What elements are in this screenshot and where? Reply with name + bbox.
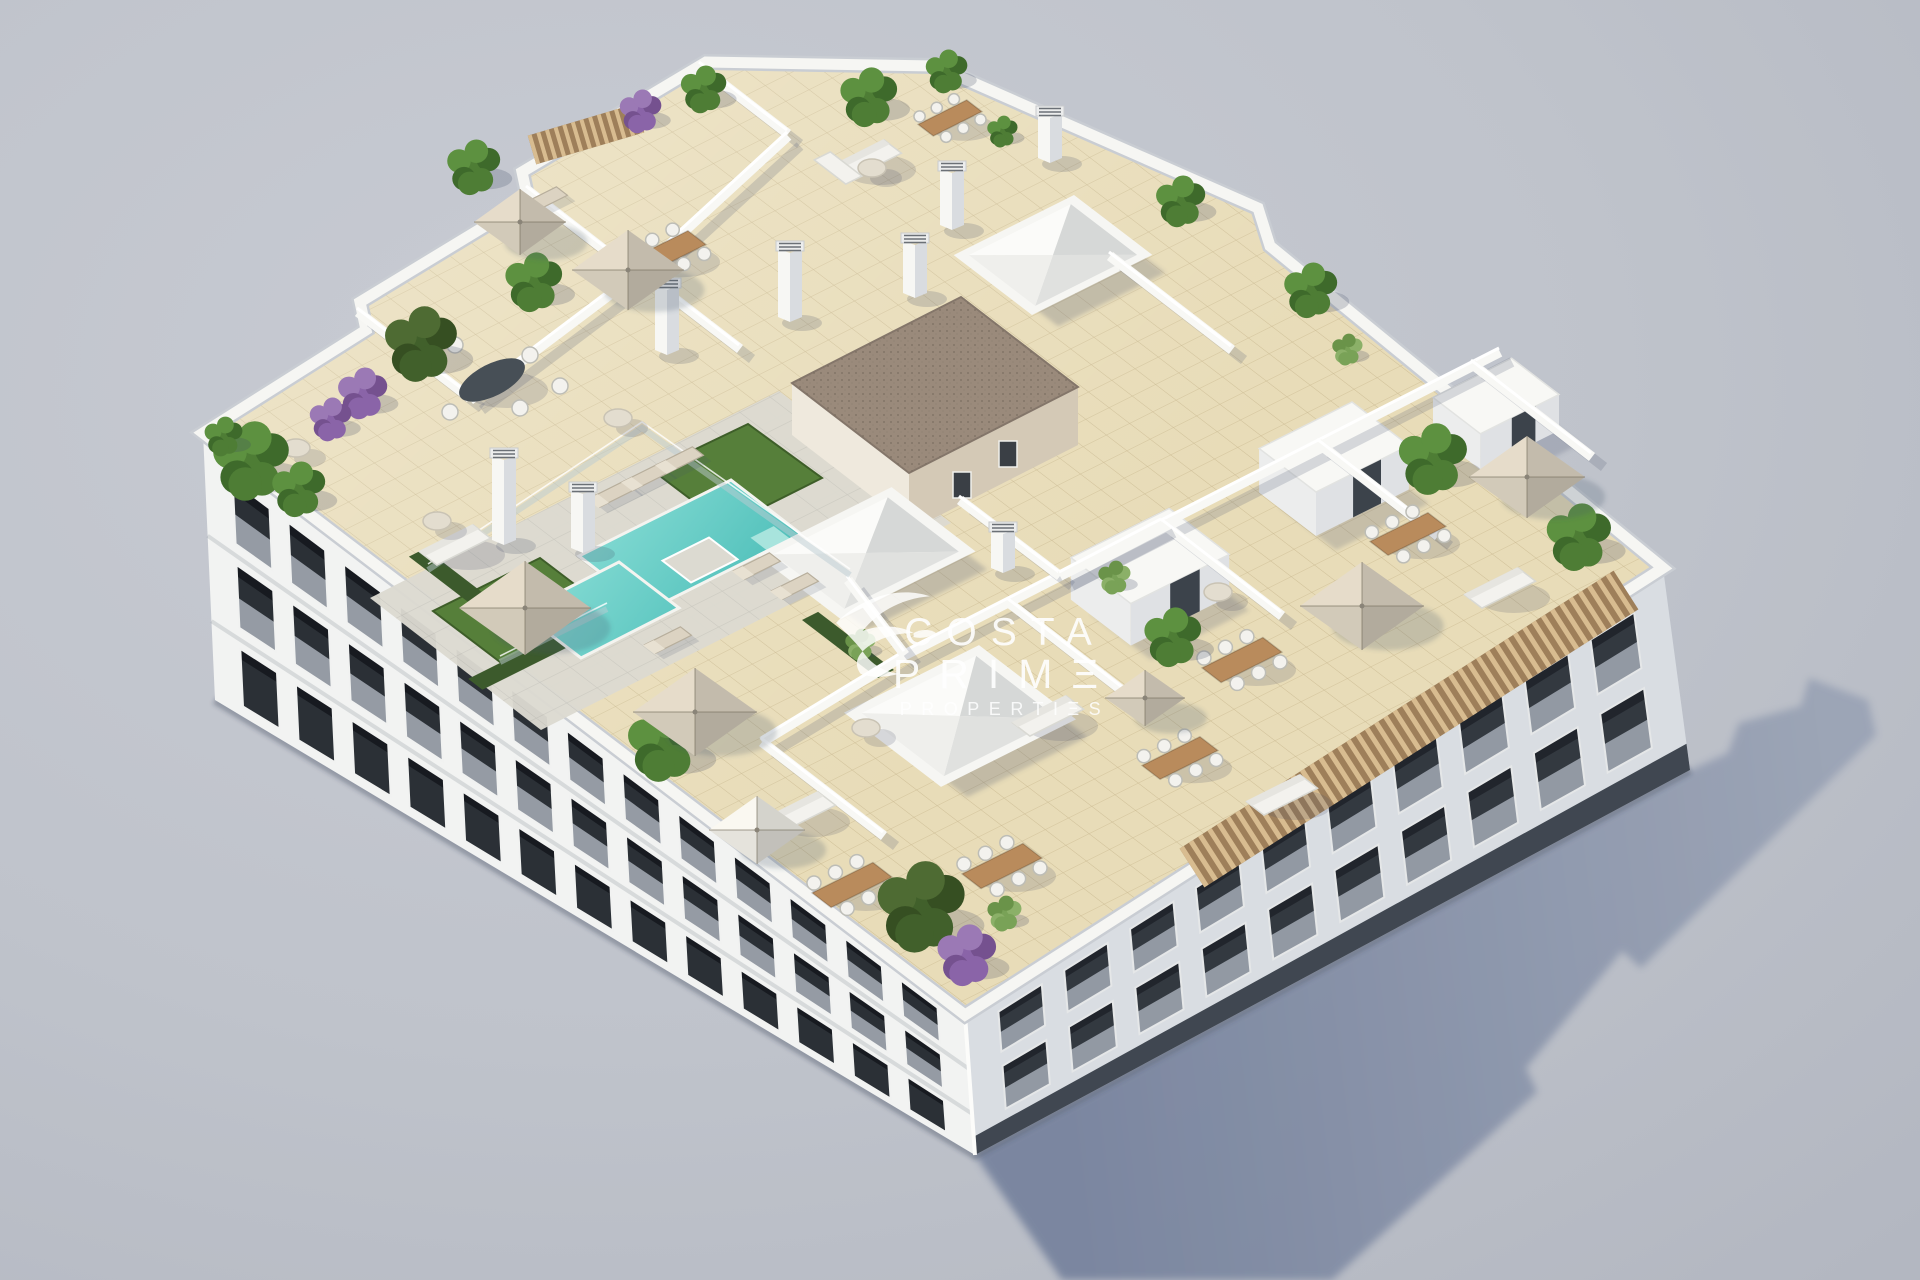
chair (807, 876, 821, 890)
chair (990, 882, 1004, 896)
foliage (934, 75, 952, 93)
chair (1230, 676, 1244, 690)
side-table (1204, 583, 1232, 601)
core-window (953, 472, 971, 498)
chair (948, 94, 959, 105)
foliage (283, 494, 307, 518)
foliage (999, 896, 1014, 911)
foliage (1172, 175, 1194, 197)
chimney-cap (776, 241, 804, 251)
chimney-face (903, 241, 915, 298)
chimney-face (583, 490, 595, 553)
chair (840, 901, 854, 915)
foliage (642, 750, 674, 782)
chair (512, 400, 528, 416)
foliage (228, 467, 262, 501)
chimney-face (940, 169, 952, 230)
chair (1169, 774, 1182, 787)
foliage (906, 861, 945, 900)
chair (522, 347, 538, 363)
foliage (517, 287, 542, 312)
chair (1000, 836, 1014, 850)
foliage (1560, 542, 1589, 571)
chair (1406, 505, 1419, 518)
chair (1158, 739, 1171, 752)
foliage (633, 90, 651, 108)
chimney-cap (989, 522, 1017, 532)
foliage (993, 134, 1006, 147)
foliage (1338, 352, 1351, 365)
chimney-cap (569, 482, 597, 492)
side-table (858, 159, 886, 177)
chimney-face (790, 249, 802, 322)
foliage (1342, 334, 1355, 347)
building-render: COSTA PRIMΞ PROPERTIΞS (0, 0, 1920, 1280)
chimney-face (1050, 114, 1062, 163)
render-viewport: COSTA PRIMΞ PROPERTIΞS (0, 0, 1920, 1280)
chair (1240, 630, 1254, 644)
chair (1417, 539, 1430, 552)
chimney-face (1038, 114, 1050, 163)
chimney-face (778, 249, 790, 322)
foliage (318, 423, 336, 441)
foliage (696, 66, 716, 86)
foliage (1105, 580, 1119, 594)
chair (697, 247, 710, 260)
foliage (458, 172, 482, 196)
foliage (690, 93, 710, 113)
chair (552, 378, 568, 394)
foliage (1295, 295, 1319, 319)
parasol-pole (693, 710, 698, 715)
parasol-pole (1143, 696, 1148, 701)
chair (1252, 666, 1266, 680)
chimney-cap (1036, 106, 1064, 116)
foliage (1302, 262, 1326, 286)
foliage (949, 960, 975, 986)
chair (862, 891, 876, 905)
foliage (895, 914, 934, 953)
foliage (957, 924, 983, 950)
side-table (852, 719, 880, 737)
foliage (1163, 607, 1188, 632)
chair (941, 131, 952, 142)
foliage (409, 306, 441, 338)
foliage (1156, 642, 1181, 667)
chair (1137, 749, 1150, 762)
foliage (217, 417, 234, 434)
parasol-pole (626, 268, 631, 273)
chair (914, 111, 925, 122)
parasol-pole (1360, 604, 1365, 609)
chair (957, 857, 971, 871)
watermark-brand-line2: PRIMΞ (893, 651, 1117, 697)
foliage (1166, 205, 1188, 227)
foliage (994, 916, 1009, 931)
foliage (1421, 423, 1451, 453)
foliage (465, 139, 489, 163)
parasol-pole (755, 828, 760, 833)
parasol-pole (523, 606, 528, 611)
side-table (604, 409, 632, 427)
foliage (859, 67, 884, 92)
chimney-face (571, 490, 583, 553)
chair (958, 123, 969, 134)
parasol-pole (1525, 475, 1530, 480)
chair (1365, 525, 1378, 538)
foliage (354, 367, 376, 389)
chair (1386, 515, 1399, 528)
chimney-face (492, 456, 504, 545)
chair (828, 865, 842, 879)
chimney-cap (901, 233, 929, 243)
chair (1033, 861, 1047, 875)
watermark-brand-line1: COSTA (904, 611, 1105, 654)
chimney-face (1003, 530, 1015, 573)
core-window (999, 441, 1017, 467)
foliage (290, 461, 314, 485)
chair (1397, 550, 1410, 563)
chair (1189, 763, 1202, 776)
chair (978, 846, 992, 860)
foliage (348, 397, 370, 419)
chimney-face (952, 169, 964, 230)
chair (931, 102, 942, 113)
foliage (323, 398, 341, 416)
foliage (939, 50, 957, 68)
foliage (852, 102, 877, 127)
chair (975, 114, 986, 125)
chair (1218, 640, 1232, 654)
chair (1273, 655, 1287, 669)
foliage (399, 350, 431, 382)
chimney-face (504, 456, 516, 545)
foliage (997, 116, 1010, 129)
chimney-cap (938, 161, 966, 171)
foliage (1413, 465, 1443, 495)
foliage (212, 440, 229, 457)
watermark-brand-line3: PROPERTIΞS (900, 699, 1110, 719)
chair (1012, 872, 1026, 886)
side-table (423, 512, 451, 530)
chimney-cap (490, 448, 518, 458)
chair (850, 855, 864, 869)
chair (1209, 753, 1222, 766)
chimney-face (991, 530, 1003, 573)
parasol-pole (518, 220, 523, 225)
chair (442, 404, 458, 420)
foliage (1109, 561, 1123, 575)
chair (1437, 529, 1450, 542)
chimney-face (915, 241, 927, 298)
chair (666, 223, 679, 236)
foliage (628, 115, 646, 133)
